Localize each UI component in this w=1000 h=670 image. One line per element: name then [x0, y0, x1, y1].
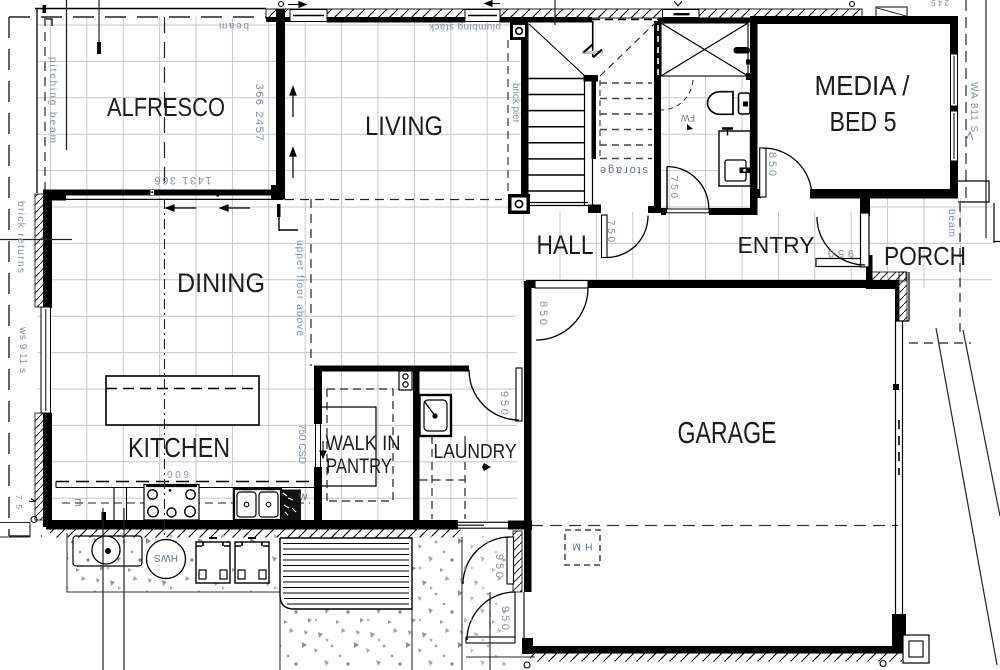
svg-text:plumbing stack: plumbing stack: [428, 21, 501, 32]
svg-text:750: 750: [605, 220, 616, 242]
svg-text:ALFRESCO: ALFRESCO: [107, 92, 225, 122]
svg-text:366 2457: 366 2457: [253, 84, 265, 141]
svg-text:WA 811 S: WA 811 S: [968, 82, 979, 132]
svg-text:W: W: [299, 492, 308, 502]
svg-text:ENTRY: ENTRY: [738, 232, 815, 258]
svg-text:beam: beam: [219, 20, 249, 31]
svg-text:pitching beam: pitching beam: [47, 57, 58, 143]
svg-text:HALL: HALL: [537, 230, 594, 260]
svg-text:GARAGE: GARAGE: [678, 415, 777, 450]
svg-text:FW: FW: [681, 113, 695, 123]
svg-text:245: 245: [930, 0, 949, 7]
svg-text:brick pier: brick pier: [510, 83, 521, 124]
svg-text:PANTRY: PANTRY: [326, 455, 392, 478]
svg-text:upper floor above: upper floor above: [294, 240, 305, 336]
svg-text:850: 850: [537, 301, 549, 325]
svg-text:850: 850: [766, 152, 778, 176]
svg-text:600: 600: [167, 468, 189, 479]
svg-text:KITCHEN: KITCHEN: [128, 432, 230, 463]
svg-text:LIVING: LIVING: [365, 111, 443, 141]
svg-text:beam: beam: [946, 209, 957, 237]
svg-text:HWS: HWS: [154, 552, 178, 563]
svg-text:DINING: DINING: [177, 268, 265, 298]
svg-text:MEDIA /: MEDIA /: [815, 70, 910, 101]
svg-text:PORCH: PORCH: [884, 241, 966, 271]
svg-text:BED 5: BED 5: [830, 106, 897, 137]
svg-text:950: 950: [828, 247, 854, 259]
svg-text:E: E: [74, 496, 81, 507]
svg-text:WALK IN: WALK IN: [326, 432, 401, 455]
svg-text:ws 9 11 s: ws 9 11 s: [17, 326, 28, 373]
svg-text:LAUNDRY: LAUNDRY: [434, 441, 517, 463]
svg-text:750: 750: [668, 176, 679, 198]
svg-text:750 CSD: 750 CSD: [296, 424, 307, 464]
svg-text:950: 950: [498, 391, 510, 415]
svg-text:1431 366: 1431 366: [155, 174, 212, 186]
